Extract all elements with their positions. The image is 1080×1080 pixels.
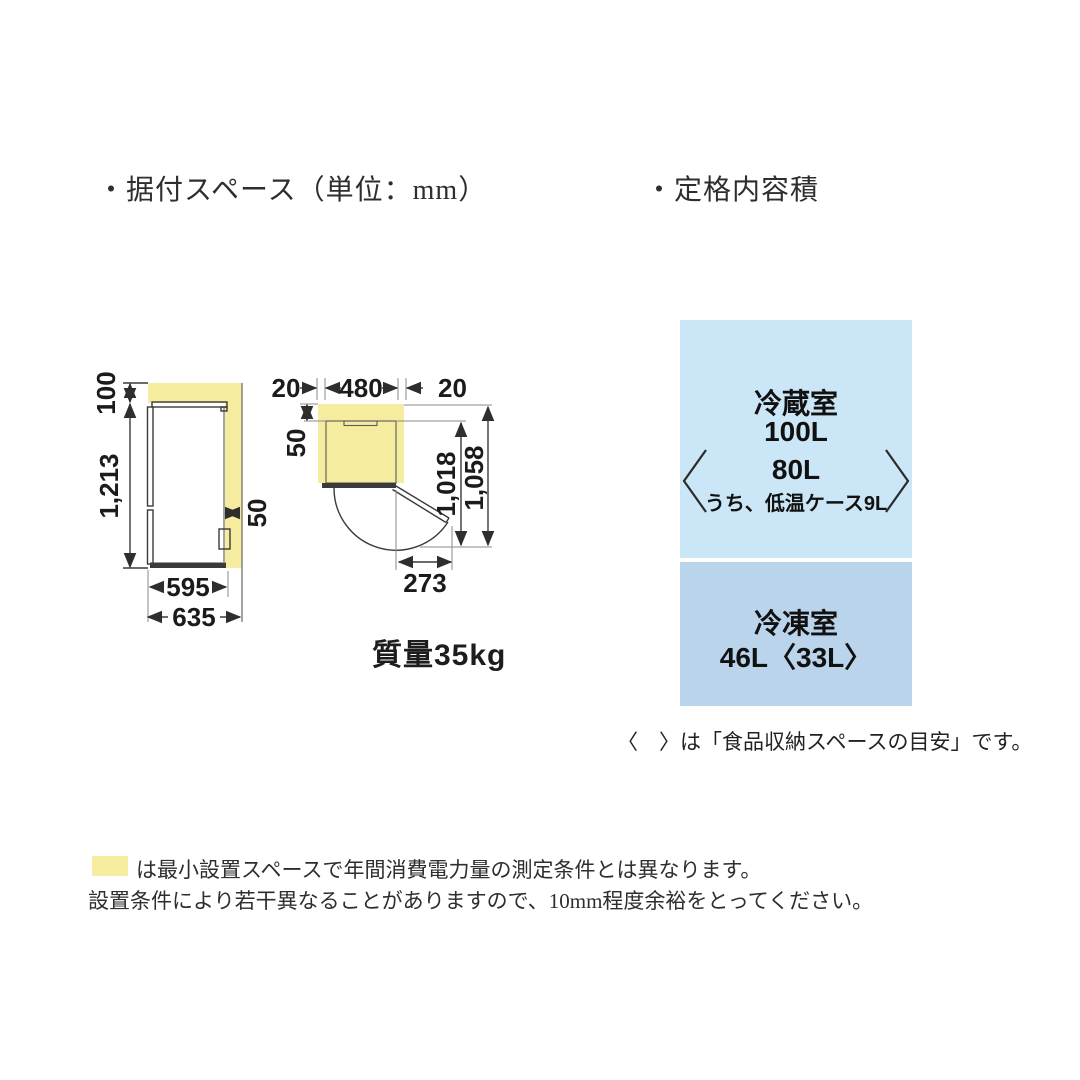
dim-label-rear-clearance-top: 50	[281, 429, 311, 458]
top-clearance-area	[318, 404, 404, 483]
dim-label-rear-clearance-side: 50	[242, 499, 272, 528]
right-angle-bracket	[886, 450, 908, 512]
fridge-capacity-box: 冷蔵室 100L 80L うち、低温ケース9L	[680, 320, 912, 558]
spec-page: ・据付スペース（単位：mm） ・定格内容積 100	[0, 0, 1080, 1080]
storage-bracket-marks	[680, 320, 912, 558]
fridge-front-face	[322, 483, 396, 488]
dim-label-total-depth: 635	[172, 602, 215, 632]
fridge-lower-door-side	[148, 510, 154, 564]
fridge-body-side	[153, 405, 224, 565]
dim-label-door-swing: 273	[403, 568, 446, 598]
bracket-note: 〈 〉は「食品収納スペースの目安」です。	[617, 726, 1032, 756]
dim-label-top-clearance: 100	[91, 371, 121, 414]
top-view-diagram: 20 480 20 50 273	[272, 373, 492, 598]
installation-section-title: ・据付スペース（単位：mm）	[97, 168, 487, 208]
fridge-base	[150, 563, 226, 569]
dim-label-height: 1,213	[94, 453, 124, 518]
freezer-volume: 46L〈33L〉	[680, 636, 912, 676]
installation-diagram: 100 1,213 50 595 635 20	[80, 355, 520, 645]
dim-label-total-depth-top: 1,058	[459, 445, 489, 510]
freezer-capacity-box: 冷凍室 46L〈33L〉	[680, 562, 912, 706]
side-view-diagram: 100 1,213 50 595 635	[91, 371, 272, 632]
footnote-line1: は最小設置スペースで年間消費電力量の測定条件とは異なります。	[136, 854, 761, 884]
dim-label-right-clearance: 20	[438, 373, 467, 403]
dim-label-depth: 595	[166, 572, 209, 602]
yellow-legend-swatch	[92, 856, 128, 876]
dim-label-width: 480	[339, 373, 382, 403]
capacity-section-title: ・定格内容積	[645, 168, 819, 208]
left-angle-bracket	[684, 450, 706, 512]
dim-label-open-door-depth: 1,018	[431, 451, 461, 516]
footnote-line2: 設置条件により若干異なることがありますので、10mm程度余裕をとってください。	[88, 885, 873, 915]
dim-label-left-clearance: 20	[272, 373, 301, 403]
fridge-upper-door-side	[148, 407, 154, 506]
mass-label: 質量35kg	[372, 630, 506, 674]
